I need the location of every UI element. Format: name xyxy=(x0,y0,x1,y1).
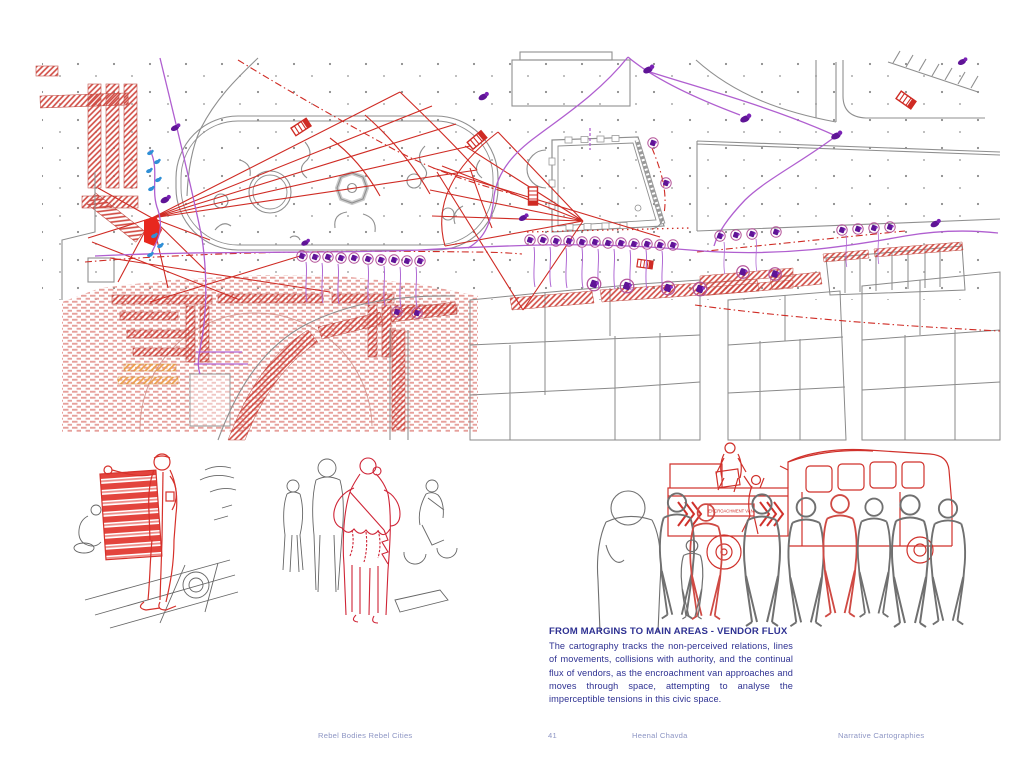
caption-heading: FROM MARGINS TO MAIN AREAS - VENDOR FLUX xyxy=(549,626,793,637)
vendor-figure xyxy=(100,454,177,610)
illustration-vendor-carrying-goods xyxy=(74,454,238,628)
caption-block: FROM MARGINS TO MAIN AREAS - VENDOR FLUX… xyxy=(549,626,793,706)
footer-book-title: Rebel Bodies Rebel Cities xyxy=(318,731,412,740)
portfolio-page: ENCROACHMENT VAN xyxy=(0,0,1024,771)
illustration-row: ENCROACHMENT VAN xyxy=(0,440,1024,640)
foreground-observer xyxy=(597,491,660,632)
page-footer: Rebel Bodies Rebel Cities 41 Heenal Chav… xyxy=(0,731,1024,745)
garland-woman-figure xyxy=(334,458,400,623)
footer-author: Heenal Chavda xyxy=(632,731,688,740)
footer-page-number: 41 xyxy=(548,731,557,740)
caption-body: The cartography tracks the non-perceived… xyxy=(549,640,793,706)
illustration-encroachment-van-crowd: ENCROACHMENT VAN xyxy=(597,443,965,632)
site-map-cartography xyxy=(0,0,1024,445)
loader-figure xyxy=(716,443,746,492)
illustration-garland-seller xyxy=(283,458,457,623)
footer-section: Narrative Cartographies xyxy=(838,731,924,740)
